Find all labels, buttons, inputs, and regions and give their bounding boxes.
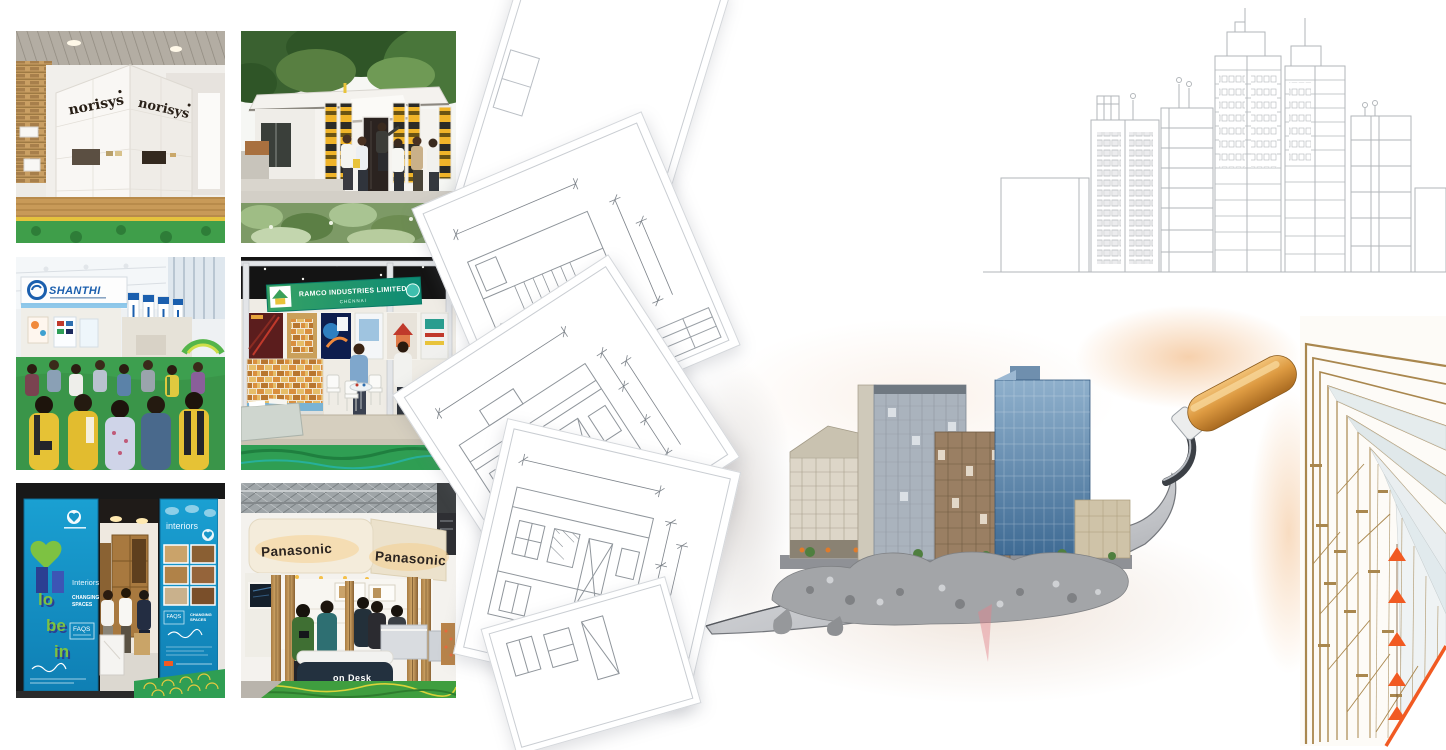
norisys-booth-art: norisys norisys bbox=[16, 31, 225, 243]
lobein-changing-label: CHANGING bbox=[72, 595, 99, 601]
pink-sliver bbox=[978, 604, 992, 662]
lobein-right-panel: interiors FAQS CHANGING SPACES bbox=[160, 499, 218, 687]
trowel-buildings-art bbox=[660, 300, 1320, 720]
skyline-sketch bbox=[983, 8, 1446, 278]
lobein-left-panel: lo lo be be in in Interiors CHANGING SPA… bbox=[24, 499, 99, 691]
panasonic-fascia: Panasonic Panasonic bbox=[249, 519, 449, 581]
lobein-letter2: be bbox=[46, 616, 66, 635]
lobein-faqs-label: FAQS bbox=[73, 626, 91, 633]
lobein-letter3: in bbox=[54, 642, 69, 661]
buildings-on-trowel bbox=[780, 366, 1132, 570]
lobein-letter1: lo bbox=[38, 590, 53, 609]
lobein-right-faqs: FAQS bbox=[167, 614, 182, 620]
lobein-interiors-label: Interiors bbox=[72, 578, 99, 587]
shanthi-logo-text: SHANTHI bbox=[49, 285, 101, 297]
trowel-handle bbox=[1181, 349, 1303, 438]
shanthi-crowd-art: SHANTHI bbox=[16, 257, 225, 470]
photo-panasonic-booth: Panasonic Panasonic bbox=[241, 483, 456, 698]
facade-framework-art bbox=[1298, 314, 1446, 748]
lobein-spaces-label: SPACES bbox=[72, 602, 93, 608]
photo-norisys-booth: norisys norisys bbox=[16, 31, 225, 243]
blueprint-pile bbox=[455, 0, 755, 750]
lobein-booth-art: lo lo be be in in Interiors CHANGING SPA… bbox=[16, 483, 225, 698]
photo-shanthi-crowd: SHANTHI bbox=[16, 257, 225, 470]
photo-lobein-booth: lo lo be be in in Interiors CHANGING SPA… bbox=[16, 483, 225, 698]
panasonic-booth-art: Panasonic Panasonic bbox=[241, 483, 456, 698]
collage-canvas: norisys norisys bbox=[0, 0, 1446, 750]
lobein-right-interiors: interiors bbox=[166, 521, 199, 531]
lobein-right-spaces: SPACES bbox=[190, 617, 206, 622]
